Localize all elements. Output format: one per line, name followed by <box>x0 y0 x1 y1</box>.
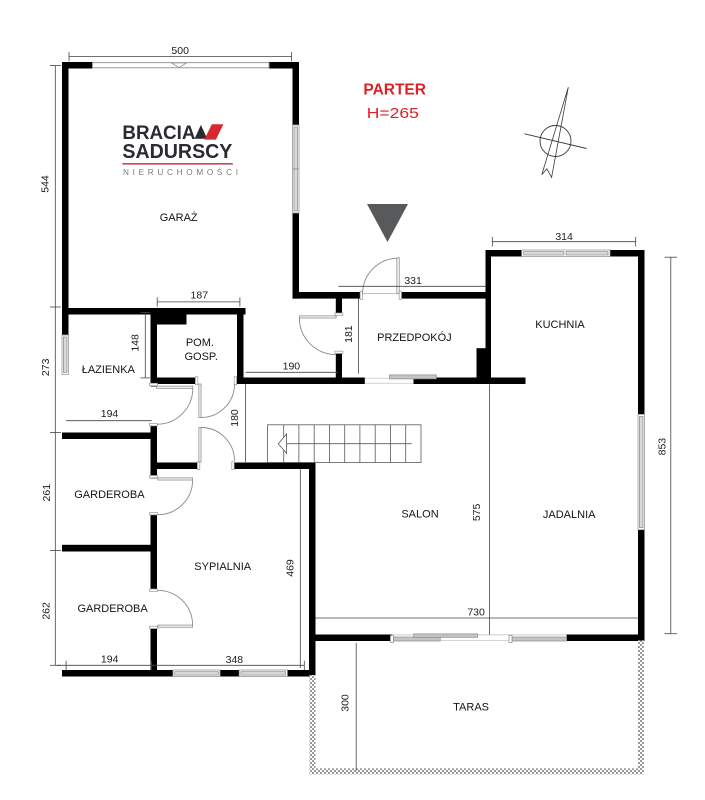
svg-text:PRZEDPOKÓJ: PRZEDPOKÓJ <box>377 331 452 344</box>
svg-text:730: 730 <box>467 607 485 619</box>
svg-text:H=265: H=265 <box>367 105 419 122</box>
svg-text:POM.: POM. <box>186 337 214 349</box>
svg-text:GARDEROBA: GARDEROBA <box>77 603 148 615</box>
svg-text:262: 262 <box>40 602 52 620</box>
svg-text:190: 190 <box>283 361 301 373</box>
svg-text:SALON: SALON <box>401 509 438 521</box>
svg-text:148: 148 <box>130 334 142 352</box>
svg-text:181: 181 <box>343 325 355 343</box>
svg-text:194: 194 <box>101 408 119 420</box>
svg-text:NIERUCHOMOŚCI: NIERUCHOMOŚCI <box>123 166 238 177</box>
svg-text:300: 300 <box>340 694 352 712</box>
svg-text:261: 261 <box>41 484 53 502</box>
svg-text:575: 575 <box>471 503 483 521</box>
svg-text:TARAS: TARAS <box>453 702 489 714</box>
svg-text:SADURSCY: SADURSCY <box>122 141 233 163</box>
svg-text:KUCHNIA: KUCHNIA <box>535 319 585 331</box>
svg-text:194: 194 <box>101 654 119 666</box>
svg-text:GOSP.: GOSP. <box>184 351 217 363</box>
svg-text:348: 348 <box>226 654 244 666</box>
svg-text:187: 187 <box>191 289 209 301</box>
svg-text:JADALNIA: JADALNIA <box>543 509 596 521</box>
svg-text:SYPIALNIA: SYPIALNIA <box>194 561 252 573</box>
svg-text:GARDEROBA: GARDEROBA <box>74 489 145 501</box>
svg-text:ŁAZIENKA: ŁAZIENKA <box>82 364 136 376</box>
svg-text:273: 273 <box>40 358 52 376</box>
svg-text:331: 331 <box>404 275 422 287</box>
svg-text:180: 180 <box>229 409 241 427</box>
svg-text:314: 314 <box>555 231 573 243</box>
svg-text:853: 853 <box>656 438 668 456</box>
svg-text:GARAŻ: GARAŻ <box>160 211 198 224</box>
svg-text:544: 544 <box>40 175 52 193</box>
svg-text:PARTER: PARTER <box>363 82 426 99</box>
svg-text:469: 469 <box>285 559 297 577</box>
svg-text:500: 500 <box>171 45 189 57</box>
